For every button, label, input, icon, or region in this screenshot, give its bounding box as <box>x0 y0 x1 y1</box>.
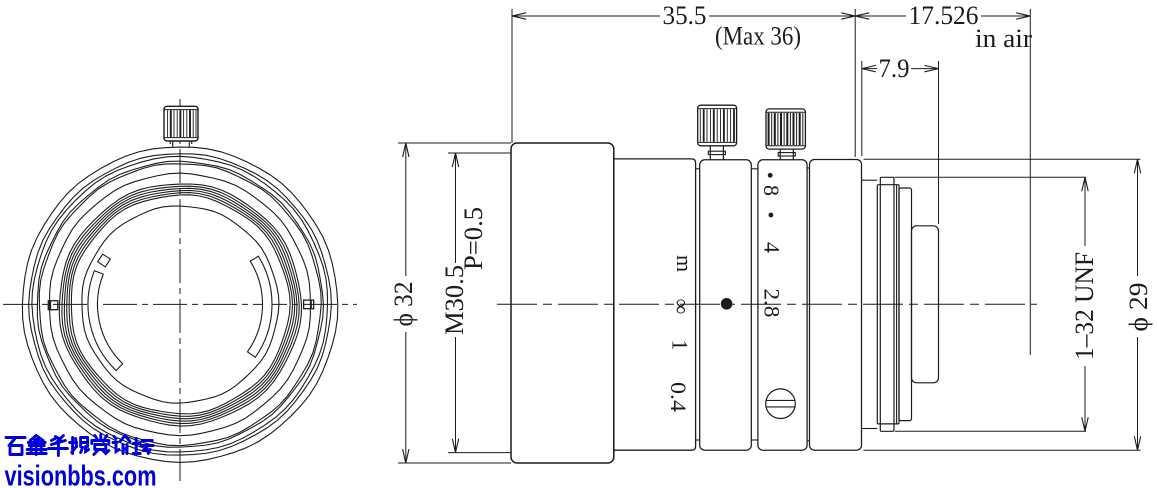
svg-text:ϕ 29: ϕ 29 <box>1124 283 1153 332</box>
svg-text:1–32 UNF: 1–32 UNF <box>1070 252 1099 360</box>
svg-text:∞: ∞ <box>669 299 694 315</box>
svg-text:4: 4 <box>760 242 785 253</box>
svg-text:17.526: 17.526 <box>909 1 979 30</box>
svg-text:visionbbs.com: visionbbs.com <box>5 460 157 488</box>
svg-text:ϕ 32: ϕ 32 <box>389 282 418 327</box>
svg-text:8: 8 <box>759 185 784 196</box>
svg-text:M30.5: M30.5 <box>440 265 469 335</box>
svg-text:P=0.5: P=0.5 <box>459 207 488 270</box>
svg-text:0.4: 0.4 <box>666 382 691 412</box>
svg-text:7.9: 7.9 <box>879 54 910 83</box>
svg-text:(Max 36): (Max 36) <box>715 22 801 51</box>
svg-text:in air: in air <box>975 24 1032 53</box>
svg-text:1: 1 <box>668 340 693 351</box>
svg-text:m: m <box>672 255 697 272</box>
svg-text:2.8: 2.8 <box>760 289 785 318</box>
svg-text:35.5: 35.5 <box>663 1 707 30</box>
